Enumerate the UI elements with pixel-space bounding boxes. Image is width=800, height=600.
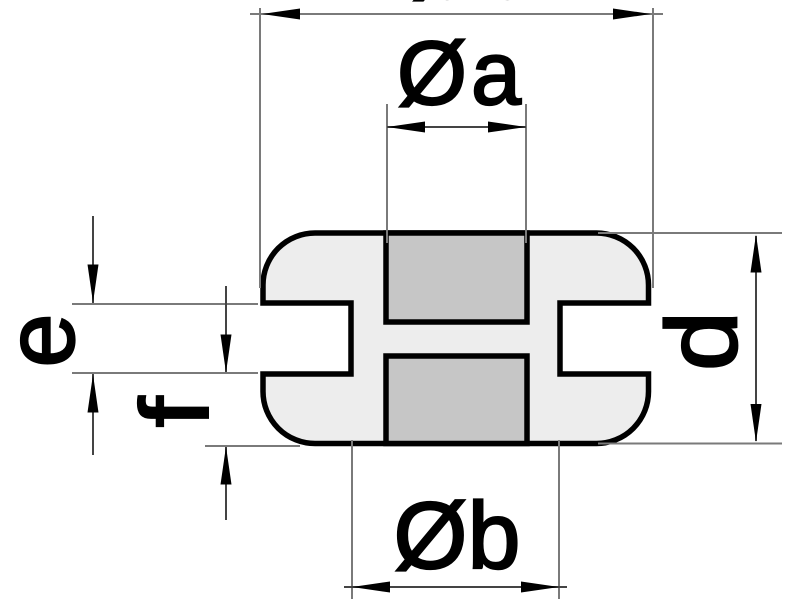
svg-text:Øc: Øc <box>411 0 529 18</box>
svg-text:Øa: Øa <box>397 24 522 124</box>
svg-text:d: d <box>647 311 758 371</box>
svg-text:f: f <box>121 395 230 427</box>
svg-text:Øb: Øb <box>394 483 521 589</box>
svg-text:e: e <box>0 314 95 368</box>
